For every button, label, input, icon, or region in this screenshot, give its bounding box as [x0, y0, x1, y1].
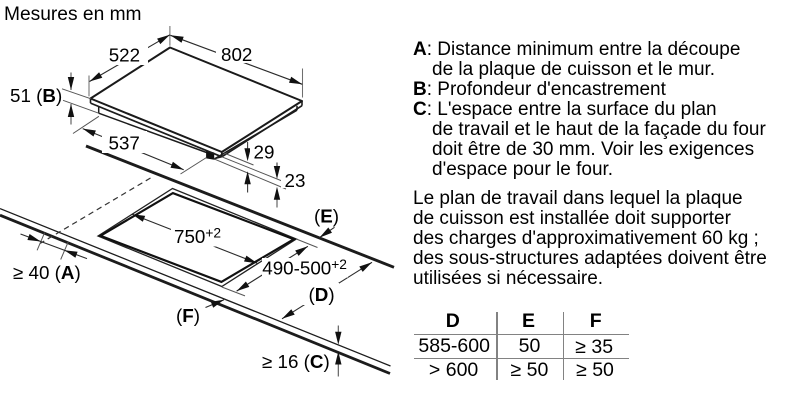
svg-text:≥ 40 (A): ≥ 40 (A)	[13, 262, 81, 283]
svg-text:51 (B): 51 (B)	[10, 85, 62, 106]
svg-text:29: 29	[254, 142, 275, 163]
svg-text:(F): (F)	[176, 305, 200, 326]
svg-text:23: 23	[285, 170, 306, 191]
svg-text:≥ 16 (C): ≥ 16 (C)	[262, 351, 330, 372]
svg-text:537: 537	[109, 133, 140, 154]
svg-text:(E): (E)	[314, 206, 339, 227]
svg-text:522: 522	[109, 45, 140, 66]
svg-text:(D): (D)	[309, 284, 335, 305]
svg-text:802: 802	[221, 44, 252, 65]
